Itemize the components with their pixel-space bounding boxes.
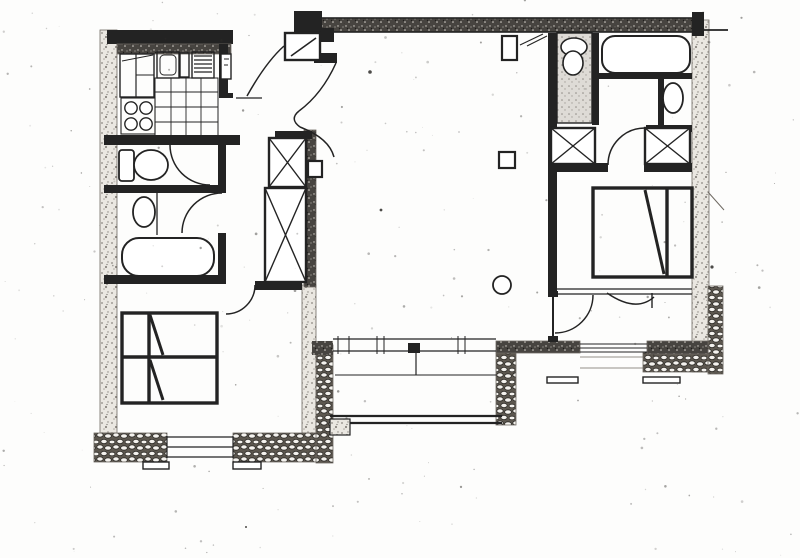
- floor-drain-circle: [493, 276, 511, 294]
- speckle-dot: [706, 300, 707, 301]
- speckle-dot: [384, 36, 387, 39]
- speckle-dot: [406, 425, 407, 426]
- speckle-dot: [368, 478, 370, 480]
- speckle-dot: [336, 163, 338, 165]
- speckle-dot: [490, 401, 492, 403]
- speckle-dot: [194, 324, 196, 326]
- speckle-dot: [153, 245, 154, 246]
- speckle-dot: [549, 107, 550, 108]
- speckle-dot: [715, 428, 717, 430]
- speckle-dot: [741, 500, 744, 503]
- speckle-dot: [705, 211, 706, 212]
- speckle-dot: [89, 88, 91, 90]
- speckle-dot: [139, 30, 140, 31]
- ledge: [233, 462, 261, 469]
- speckle-dot: [161, 265, 163, 267]
- ink-blot: [380, 209, 383, 212]
- speckle-dot: [150, 28, 152, 30]
- speckle-dot: [428, 462, 429, 463]
- speckle-dot: [84, 299, 85, 300]
- speckle-dot: [577, 400, 579, 402]
- speckle-dot: [677, 384, 678, 385]
- speckle-dot: [614, 26, 616, 28]
- speckle-dot: [701, 111, 702, 112]
- speckle-dot: [761, 269, 763, 271]
- speckle-dot: [552, 74, 554, 76]
- speckle-dot: [664, 241, 666, 243]
- entry-vestibule: [285, 33, 320, 60]
- speckle-dot: [458, 131, 460, 133]
- speckle-dot: [110, 392, 111, 393]
- speckle-dot: [624, 277, 625, 278]
- speckle-dot: [258, 114, 259, 115]
- stove-burner: [125, 118, 137, 130]
- speckle-dot: [5, 281, 6, 282]
- speckle-dot: [683, 221, 684, 222]
- speckle-dot: [432, 135, 433, 136]
- ledge: [643, 377, 680, 383]
- exterior-wall-right-outer: [708, 286, 723, 374]
- speckle-dot: [99, 225, 100, 226]
- speckle-dot: [725, 172, 726, 173]
- speckle-dot: [112, 265, 114, 267]
- speckle-dot: [672, 117, 673, 118]
- balcony-door-mark: [408, 343, 420, 353]
- speckle-dot: [374, 61, 376, 63]
- speckle-dot: [753, 71, 756, 74]
- speckle-dot: [34, 522, 35, 523]
- speckle-dot: [58, 209, 60, 211]
- speckle-dot: [332, 505, 334, 507]
- floorplan-drawing: [0, 0, 800, 558]
- speckle-dot: [31, 413, 32, 414]
- speckle-dot: [128, 138, 130, 140]
- speckle-dot: [601, 214, 603, 216]
- wall-corridor-east-low: [218, 233, 226, 284]
- speckle-dot: [560, 45, 561, 46]
- kitchen-top-wall: [107, 30, 233, 44]
- speckle-dot: [89, 186, 90, 187]
- speckle-dot: [70, 130, 71, 131]
- speckle-dot: [403, 305, 406, 308]
- speckle-dot: [229, 140, 231, 142]
- speckle-dot: [444, 209, 445, 210]
- speckle-dot: [213, 544, 214, 545]
- speckle-dot: [3, 465, 4, 466]
- speckle-dot: [430, 307, 432, 309]
- toilet-right-bowl: [563, 51, 583, 75]
- speckle-dot: [664, 485, 667, 488]
- speckle-dot: [259, 547, 261, 549]
- speckle-dot: [536, 291, 538, 293]
- speckle-dot: [702, 11, 704, 13]
- speckle-dot: [30, 65, 32, 67]
- wall-toilet-bath: [104, 185, 226, 193]
- speckle-dot: [394, 255, 396, 257]
- speckle-dot: [255, 233, 258, 236]
- sink-left: [133, 197, 155, 227]
- speckle-dot: [722, 416, 723, 417]
- speckle-dot: [63, 311, 64, 312]
- speckle-dot: [32, 13, 33, 14]
- speckle-dot: [454, 249, 456, 251]
- speckle-dot: [769, 307, 771, 309]
- speckle-dot: [206, 552, 207, 553]
- wall-kitchen-east-foot: [219, 93, 233, 98]
- kitchen-wall-fixture: [221, 54, 231, 79]
- speckle-dot: [147, 186, 148, 187]
- speckle-dot: [415, 76, 417, 78]
- bathtub-right: [602, 36, 690, 73]
- balcony-corner-wall: [312, 341, 333, 355]
- speckle-dot: [590, 310, 592, 312]
- speckle-dot: [295, 268, 296, 269]
- speckle-dot: [277, 355, 280, 358]
- speckle-dot: [367, 252, 370, 255]
- speckle-dot: [158, 147, 160, 149]
- speckle-dot: [664, 302, 665, 303]
- toilet-left-bowl: [134, 150, 168, 180]
- speckle-dot: [643, 438, 645, 440]
- speckle-dot: [584, 88, 586, 90]
- speckle-dot: [697, 302, 699, 304]
- speckle-dot: [193, 465, 196, 468]
- speckle-dot: [371, 327, 373, 329]
- speckle-dot: [401, 52, 403, 54]
- speckle-dot: [453, 277, 456, 280]
- speckle-dot: [740, 17, 742, 19]
- speckle-dot: [175, 510, 178, 513]
- speckle-dot: [200, 540, 202, 542]
- top-right-block: [692, 12, 704, 36]
- speckle-dot: [451, 337, 452, 338]
- speckle-dot: [423, 149, 425, 151]
- speckle-dot: [426, 61, 429, 64]
- speckle-dot: [217, 224, 219, 226]
- speckle-dot: [451, 523, 452, 524]
- speckle-dot: [220, 325, 223, 328]
- speckle-dot: [780, 555, 781, 556]
- speckle-dot: [634, 343, 636, 345]
- wall-toilet-east: [218, 135, 226, 193]
- speckle-dot: [290, 342, 292, 344]
- speckle-dot: [424, 476, 425, 477]
- speckle-dot: [152, 20, 153, 21]
- speckle-dot: [294, 289, 297, 292]
- stove-burner: [140, 102, 152, 114]
- speckle-dot: [599, 236, 601, 238]
- speckle-dot: [579, 317, 581, 319]
- speckle-dot: [520, 115, 522, 117]
- speckle-dot: [756, 264, 758, 266]
- speckle-dot: [492, 94, 494, 96]
- speckle-dot: [183, 135, 184, 136]
- room-br-west-foot-top: [548, 291, 558, 297]
- speckle-dot: [34, 243, 35, 244]
- speckle-dot: [146, 293, 147, 294]
- speckle-dot: [162, 2, 163, 3]
- duct-shaft: [645, 128, 690, 164]
- speckle-dot: [113, 180, 115, 182]
- speckle-dot: [402, 482, 404, 484]
- speckle-dot: [18, 289, 20, 291]
- speckle-dot: [630, 503, 632, 505]
- wall-step: [330, 419, 350, 435]
- speckle-dot: [287, 312, 288, 313]
- speckle-dot: [472, 14, 474, 16]
- stove-burner: [140, 118, 152, 130]
- ledge: [547, 377, 578, 383]
- speckle-dot: [420, 375, 421, 376]
- exterior-wall-left: [100, 30, 117, 433]
- speckle-dot: [706, 364, 708, 366]
- speckle-dot: [656, 432, 658, 434]
- speckle-dot: [713, 496, 714, 497]
- speckle-dot: [235, 384, 237, 386]
- bathtub-left: [122, 238, 214, 276]
- wall-south-right: [647, 341, 708, 354]
- ink-blot: [368, 70, 372, 74]
- speckle-dot: [411, 428, 412, 429]
- speckle-dot: [172, 155, 173, 156]
- exterior-wall-right: [692, 20, 709, 372]
- bathroom-right-divider: [592, 33, 599, 125]
- speckle-dot: [480, 41, 482, 43]
- column-top: [502, 36, 517, 60]
- speckle-dot: [296, 233, 298, 235]
- speckle-dot: [15, 401, 16, 402]
- speckle-dot: [476, 497, 477, 498]
- speckle-dot: [539, 28, 541, 30]
- speckle-dot: [674, 244, 676, 246]
- speckle-dot: [422, 127, 423, 128]
- speckle-dot: [74, 551, 75, 552]
- speckle-dot: [286, 237, 289, 240]
- speckle-dot: [220, 39, 223, 42]
- speckle-dot: [473, 198, 474, 199]
- speckle-dot: [217, 13, 218, 14]
- speckle-dot: [364, 400, 366, 402]
- speckle-dot: [796, 412, 798, 414]
- speckle-dot: [668, 316, 670, 318]
- speckle-dot: [460, 486, 462, 488]
- speckle-dot: [2, 450, 4, 452]
- speckle-dot: [513, 372, 516, 375]
- speckle-dot: [399, 227, 400, 228]
- speckle-dot: [168, 69, 170, 71]
- balcony-right-wall: [496, 353, 516, 425]
- speckle-dot: [93, 250, 95, 252]
- speckle-dot: [684, 202, 685, 203]
- exterior-wall-bottom-left-a: [94, 433, 167, 462]
- duct-shaft: [551, 128, 595, 164]
- speckle-dot: [113, 536, 115, 538]
- ledge: [143, 462, 169, 469]
- stove-burner: [125, 102, 137, 114]
- speckle-dot: [508, 306, 510, 308]
- speckle-dot: [190, 48, 192, 50]
- speckle-dot: [678, 73, 680, 75]
- speckle-dot: [46, 28, 47, 29]
- speckle-dot: [545, 199, 547, 201]
- speckle-dot: [652, 400, 653, 401]
- speckle-dot: [790, 533, 792, 535]
- speckle-dot: [758, 286, 761, 289]
- speckle-dot: [81, 172, 82, 173]
- speckle-dot: [345, 417, 347, 419]
- speckle-dot: [473, 469, 474, 470]
- speckle-dot: [645, 489, 646, 490]
- speckle-dot: [599, 270, 600, 271]
- speckle-dot: [110, 413, 112, 415]
- speckle-dot: [208, 238, 209, 239]
- speckle-dot: [7, 73, 9, 75]
- speckle-dot: [415, 132, 417, 134]
- speckle-dot: [185, 547, 187, 549]
- speckle-dot: [332, 535, 333, 536]
- speckle-dot: [688, 495, 690, 497]
- speckle-dot: [719, 306, 720, 307]
- speckle-dot: [735, 551, 736, 552]
- speckle-dot: [385, 123, 387, 125]
- speckle-dot: [357, 501, 359, 503]
- speckle-dot: [654, 548, 656, 550]
- speckle-dot: [516, 72, 517, 73]
- speckle-dot: [721, 221, 722, 222]
- speckle-dot: [222, 311, 223, 312]
- speckle-dot: [29, 125, 31, 127]
- entry-step-wall: [320, 28, 334, 42]
- ink-blot: [710, 265, 713, 268]
- speckle-dot: [735, 272, 736, 273]
- speckle-dot: [526, 152, 528, 154]
- toilet-left-tank: [119, 150, 134, 181]
- duct-shaft: [269, 138, 306, 187]
- top-wall: [320, 18, 694, 32]
- speckle-dot: [340, 121, 342, 123]
- exterior-wall-bottom-left-b: [233, 433, 317, 462]
- speckle-dot: [90, 487, 91, 488]
- speckle-dot: [344, 23, 345, 24]
- speckle-dot: [685, 398, 686, 399]
- speckle-dot: [619, 316, 621, 318]
- duct-shaft: [265, 188, 306, 282]
- speckle-dot: [82, 450, 83, 451]
- speckle-dot: [200, 247, 202, 249]
- speckle-dot: [678, 396, 680, 398]
- speckle-dot: [354, 303, 355, 304]
- speckle-dot: [708, 41, 710, 43]
- ink-blot: [245, 526, 247, 528]
- speckle-dot: [351, 454, 353, 456]
- speckle-dot: [248, 35, 249, 36]
- speckle-dot: [443, 295, 445, 297]
- speckle-dot: [419, 521, 420, 522]
- speckle-dot: [15, 338, 16, 339]
- entry-door-block: [294, 11, 322, 33]
- speckle-dot: [722, 549, 723, 550]
- speckle-dot: [653, 354, 655, 356]
- speckle-dot: [59, 26, 60, 27]
- speckle-dot: [44, 432, 45, 433]
- speckle-dot: [647, 296, 649, 298]
- speckle-dot: [321, 65, 322, 66]
- speckle-dot: [793, 119, 794, 120]
- speckle-dot: [73, 548, 75, 550]
- speckle-dot: [44, 167, 46, 169]
- column-mid: [499, 152, 515, 168]
- speckle-dot: [406, 131, 408, 133]
- speckle-dot: [774, 183, 775, 184]
- speckle-dot: [341, 106, 343, 108]
- speckle-dot: [340, 353, 341, 354]
- speckle-dot: [249, 320, 250, 321]
- speckle-dot: [277, 509, 278, 510]
- speckle-dot: [641, 447, 644, 450]
- speckle-dot: [165, 38, 167, 40]
- speckle-dot: [208, 471, 210, 473]
- speckle-dot: [544, 39, 545, 40]
- speckle-dot: [413, 79, 414, 80]
- speckle-dot: [52, 166, 53, 167]
- wall-clamp-fixture: [308, 161, 322, 177]
- floorplan-page: [0, 0, 800, 558]
- speckle-dot: [53, 295, 54, 296]
- speckle-dot: [461, 295, 463, 297]
- speckle-dot: [608, 85, 609, 86]
- bedroom-left-east-wall: [302, 285, 316, 433]
- speckle-dot: [244, 267, 245, 268]
- speckle-dot: [337, 390, 340, 393]
- speckle-dot: [254, 14, 256, 16]
- speckle-dot: [728, 84, 731, 87]
- speckle-dot: [42, 206, 44, 208]
- speckle-dot: [693, 296, 695, 298]
- speckle-dot: [354, 161, 355, 162]
- speckle-dot: [3, 31, 5, 33]
- speckle-dot: [487, 249, 489, 251]
- balcony-left-wall: [316, 345, 333, 463]
- speckle-dot: [137, 458, 139, 460]
- speckle-dot: [367, 150, 368, 151]
- speckle-dot: [775, 173, 776, 174]
- speckle-dot: [242, 109, 244, 111]
- speckle-dot: [278, 416, 279, 417]
- speckle-dot: [263, 488, 264, 489]
- speckle-dot: [401, 493, 402, 494]
- speckle-dot: [652, 185, 653, 186]
- wall-south-mid: [496, 341, 580, 353]
- sink-right: [663, 83, 683, 113]
- speckle-dot: [222, 351, 223, 352]
